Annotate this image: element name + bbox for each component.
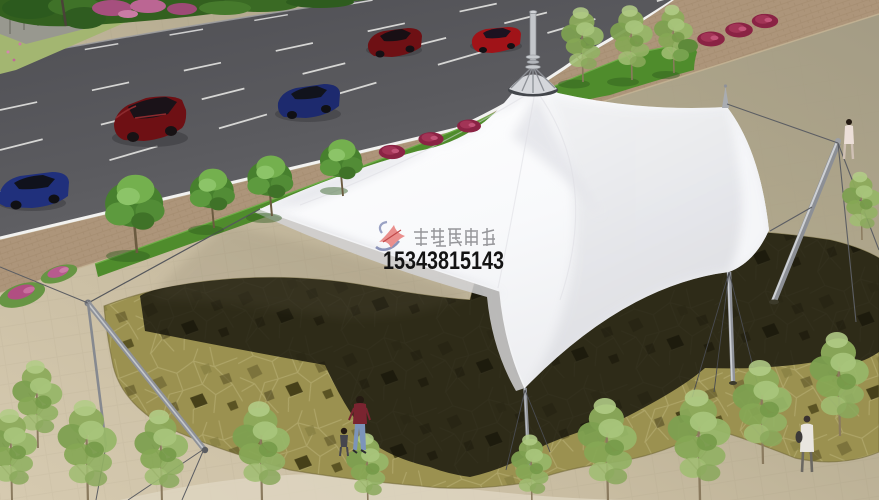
svg-text:15343815143: 15343815143 [383, 247, 504, 275]
